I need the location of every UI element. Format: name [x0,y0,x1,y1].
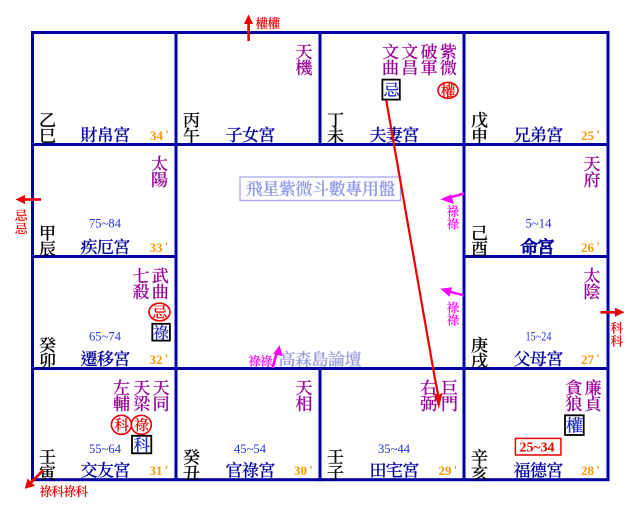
svg-text:31: 31 [150,463,163,478]
svg-text:55~64: 55~64 [89,441,121,456]
svg-text:27: 27 [581,352,595,367]
svg-text:': ' [454,463,458,478]
svg-text:': ' [165,463,169,478]
svg-text:35~44: 35~44 [378,441,410,456]
svg-text:': ' [596,127,600,142]
svg-text:29: 29 [439,463,453,478]
svg-text:45~54: 45~54 [234,441,266,456]
svg-text:33: 33 [150,240,164,255]
svg-text:28: 28 [581,463,595,478]
svg-text:65~74: 65~74 [89,328,121,343]
svg-text:34: 34 [150,128,164,143]
svg-text:': ' [165,239,169,254]
svg-text:5~14: 5~14 [526,215,552,230]
svg-text:': ' [596,463,600,478]
svg-text:75~84: 75~84 [89,215,121,230]
svg-text:30: 30 [294,463,307,478]
svg-text:32: 32 [150,352,163,367]
svg-text:': ' [596,239,600,254]
svg-text:': ' [309,463,313,478]
svg-text:': ' [596,351,600,366]
svg-text:25: 25 [581,128,595,143]
svg-text:': ' [165,351,169,366]
svg-text:26: 26 [581,240,595,255]
svg-text:': ' [165,127,169,142]
svg-text:25~34: 25~34 [520,439,555,454]
svg-text:15~24: 15~24 [526,328,552,343]
